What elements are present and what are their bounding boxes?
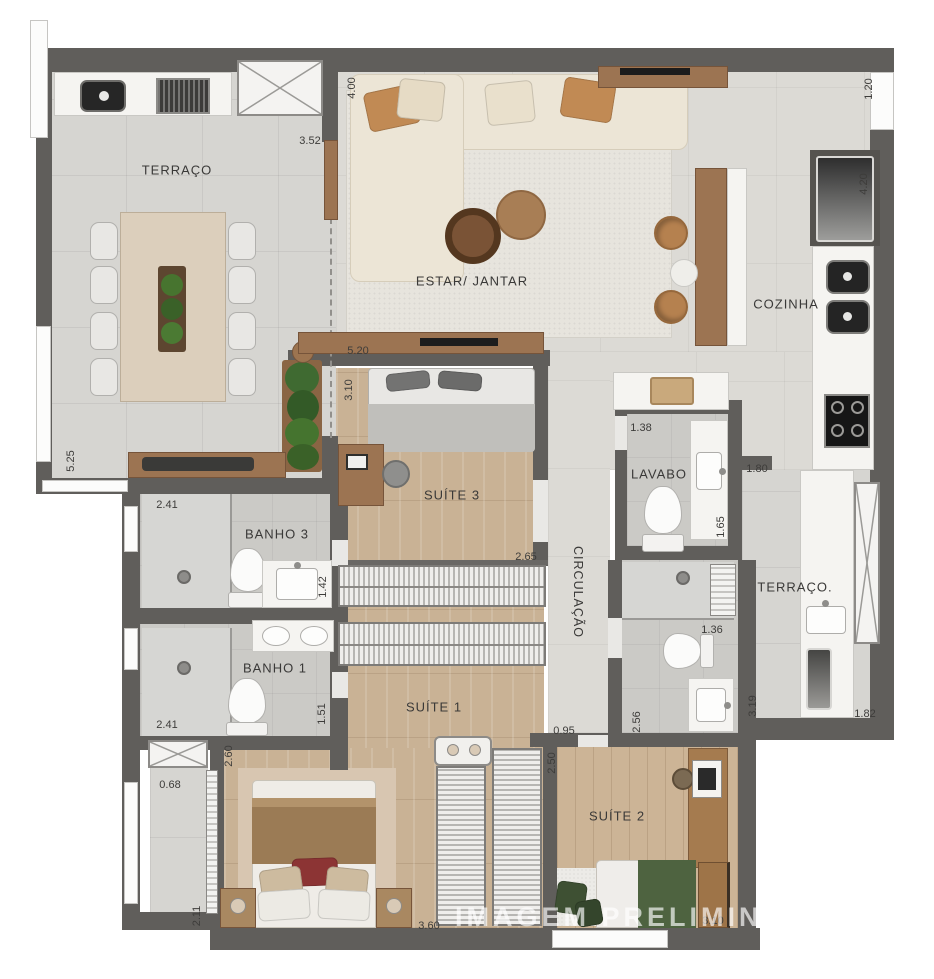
door-banho3: [332, 540, 348, 566]
dim-0-68: 0.68: [159, 779, 180, 791]
dim-2-41-banho1: 2.41: [156, 719, 177, 731]
dim-2-65: 2.65: [515, 551, 536, 563]
stool-icon: [654, 290, 688, 324]
sink-faucet-icon: [294, 562, 301, 569]
sink-faucet-icon: [724, 702, 731, 709]
plant-icon: [287, 444, 319, 470]
shower-glass: [622, 618, 734, 620]
door-suite2: [578, 735, 608, 747]
basin-icon: [696, 688, 726, 722]
dim-2-56: 2.56: [631, 711, 643, 732]
basin-icon: [300, 626, 328, 646]
window-terrace-left: [36, 326, 51, 462]
duct-exterior: [30, 20, 48, 138]
dim-1-51: 1.51: [316, 703, 328, 724]
window-banho1: [124, 628, 138, 670]
dim-2-41-banho3: 2.41: [156, 499, 177, 511]
dim-1-42: 1.42: [317, 576, 329, 597]
burner-icon: [831, 401, 844, 414]
toilet-tank: [642, 534, 684, 552]
fridge-icon: [816, 156, 874, 242]
dim-4-00: 4.00: [346, 77, 358, 98]
kitchen-island-counter: [727, 168, 747, 346]
dining-chair: [90, 312, 118, 350]
dim-1-36: 1.36: [701, 624, 722, 636]
dining-chair: [90, 358, 118, 396]
shower-head-icon: [177, 661, 191, 675]
watermark: IMAGEM PRELIMINAR: [455, 902, 810, 933]
dim-3-10: 3.10: [343, 379, 355, 400]
bench-cushion: [142, 457, 254, 471]
bed-pillow: [437, 370, 482, 392]
burner-icon: [831, 424, 844, 437]
plant-icon: [161, 274, 183, 296]
room-label-lavabo: LAVABO: [631, 467, 687, 482]
water-heater-icon: [806, 648, 832, 710]
suite1-dresser: [434, 736, 492, 766]
sink-faucet-icon: [843, 312, 852, 321]
shaft-terrace: [237, 60, 323, 116]
dim-1-82: 1.82: [854, 708, 875, 720]
terrace-sink-faucet-icon: [99, 91, 109, 101]
sink-faucet-icon: [843, 272, 852, 281]
toilet-tank: [226, 722, 268, 736]
tv-icon: [620, 68, 690, 75]
shower-area: [142, 628, 230, 736]
shower-head-icon: [676, 571, 690, 585]
door-lavabo: [615, 416, 627, 450]
suite3-wardrobe: [338, 565, 546, 607]
basin-icon: [262, 626, 290, 646]
wall-top: [36, 48, 894, 72]
floor-plan: TERRAÇO ESTAR/ JANTAR COZINHA LAVABO TER…: [0, 0, 934, 979]
lamp-icon: [386, 898, 402, 914]
bed-pillow: [257, 888, 311, 922]
dim-3-52: 3.52: [299, 135, 320, 147]
dining-chair: [228, 312, 256, 350]
service-tall-cabinet: [854, 482, 880, 644]
window-terrace-bottom: [42, 480, 128, 492]
suite1-wardrobe: [338, 622, 546, 666]
sofa-pillow: [396, 78, 446, 123]
dim-2-50: 2.50: [546, 752, 558, 773]
desk-chair-icon: [672, 768, 694, 790]
sliding-door-dashed-line: [330, 218, 332, 438]
dim-1-38: 1.38: [630, 422, 651, 434]
tv-icon: [698, 768, 716, 790]
wall-suite2-right: [738, 560, 756, 940]
desk-chair-icon: [382, 460, 410, 488]
lamp-icon: [230, 898, 246, 914]
room-label-estar-jantar: ESTAR/ JANTAR: [416, 274, 528, 289]
kitchen-island: [695, 168, 727, 346]
door-suite3: [533, 480, 548, 542]
room-label-suite2: SUÍTE 2: [589, 809, 645, 824]
laptop-icon: [346, 454, 368, 470]
burner-icon: [851, 424, 864, 437]
plant-icon: [161, 298, 183, 320]
suite1-blanket: [252, 798, 376, 864]
dim-2-11: 2.11: [191, 906, 203, 927]
room-label-suite3: SUÍTE 3: [424, 488, 480, 503]
wall-terrace-living-stub-top: [322, 70, 338, 142]
sofa-pillow: [484, 80, 536, 127]
cooktop-icon: [824, 394, 870, 448]
suite3-blanket: [368, 404, 535, 452]
dresser-knob-icon: [447, 744, 459, 756]
dresser-knob-icon: [469, 744, 481, 756]
room-label-cozinha: COZINHA: [753, 297, 819, 312]
room-label-banho1: BANHO 1: [243, 661, 307, 676]
dining-chair: [90, 266, 118, 304]
circulation-floor: [548, 352, 610, 733]
dim-2-60: 2.60: [223, 745, 235, 766]
toilet-tank: [700, 634, 714, 668]
sink-faucet-icon: [719, 468, 726, 475]
door-banho1: [332, 672, 348, 698]
dim-1-80: 1.80: [746, 463, 767, 475]
grill-icon: [156, 78, 210, 114]
dim-0-95: 0.95: [553, 725, 574, 737]
hall-sliding-panel: [206, 770, 218, 914]
blanket-fold: [252, 798, 376, 807]
shower-glass: [230, 494, 232, 608]
laundry-sink-icon: [806, 606, 846, 634]
room-label-suite1: SUÍTE 1: [406, 700, 462, 715]
room-label-banho3: BANHO 3: [245, 527, 309, 542]
dim-3-60: 3.60: [418, 920, 439, 932]
window-hall: [124, 782, 138, 904]
toilet-icon: [228, 678, 266, 724]
dining-chair: [228, 222, 256, 260]
side-table-icon: [670, 259, 698, 287]
coffee-table-small: [496, 190, 546, 240]
room-label-circulacao: CIRCULAÇÃO: [571, 546, 585, 638]
sink-faucet-icon: [822, 600, 829, 607]
dim-5-20: 5.20: [347, 345, 368, 357]
dim-1-20: 1.20: [863, 78, 875, 99]
room-label-terraco-left: TERRAÇO: [142, 163, 213, 178]
bed-pillow: [317, 889, 370, 922]
tv-icon: [420, 338, 498, 346]
stool-icon: [654, 216, 688, 250]
wall-lavabo-right: [728, 400, 742, 560]
toilet-icon: [230, 548, 266, 592]
divider-buffet: [324, 140, 338, 220]
window-banho3: [124, 506, 138, 552]
suite1-closet-rack: [492, 748, 542, 926]
dining-chair: [228, 358, 256, 396]
plant-icon: [161, 322, 183, 344]
coffee-table: [445, 208, 501, 264]
room-label-terraco-right: TERRAÇO.: [757, 580, 832, 595]
dim-5-25: 5.25: [65, 450, 77, 471]
door-banho-suite2: [608, 618, 622, 658]
shower-area: [142, 494, 230, 608]
bath2-cabinet: [710, 564, 736, 616]
toilet-icon: [644, 486, 682, 534]
wall-terrace-right-bottom: [738, 718, 894, 740]
dim-3-19: 3.19: [747, 695, 759, 716]
shaft-hall: [148, 740, 208, 768]
dim-4-20: 4.20: [858, 173, 870, 194]
decor-tray-icon: [650, 377, 694, 405]
dining-chair: [228, 266, 256, 304]
dim-1-65: 1.65: [715, 516, 727, 537]
shower-head-icon: [177, 570, 191, 584]
burner-icon: [851, 401, 864, 414]
dining-chair: [90, 222, 118, 260]
basin-icon: [276, 568, 318, 600]
shower-glass: [230, 628, 232, 736]
